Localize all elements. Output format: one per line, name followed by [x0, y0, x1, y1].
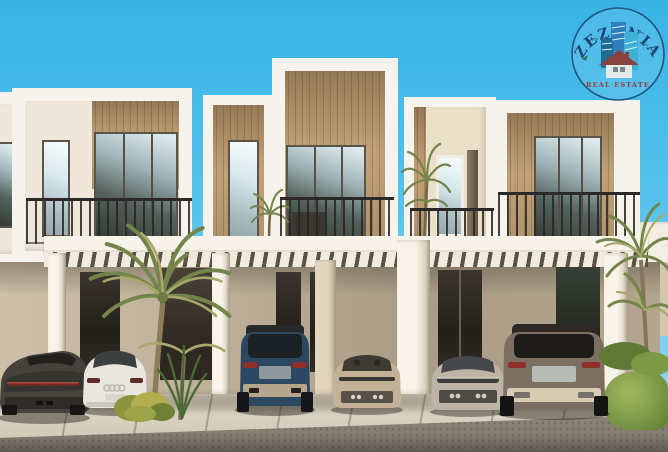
car-blue-suv	[233, 320, 317, 418]
zezenia-logo: ZEZENIA REAL ESTATE	[568, 4, 668, 104]
townhouse-render-scene: ZEZENIA REAL ESTATE	[0, 0, 668, 452]
logo-tagline-text: REAL ESTATE	[586, 81, 650, 89]
palm-cluster-right	[585, 180, 668, 380]
shrub-yellow	[112, 380, 176, 422]
car-beige-convertible	[330, 344, 404, 416]
